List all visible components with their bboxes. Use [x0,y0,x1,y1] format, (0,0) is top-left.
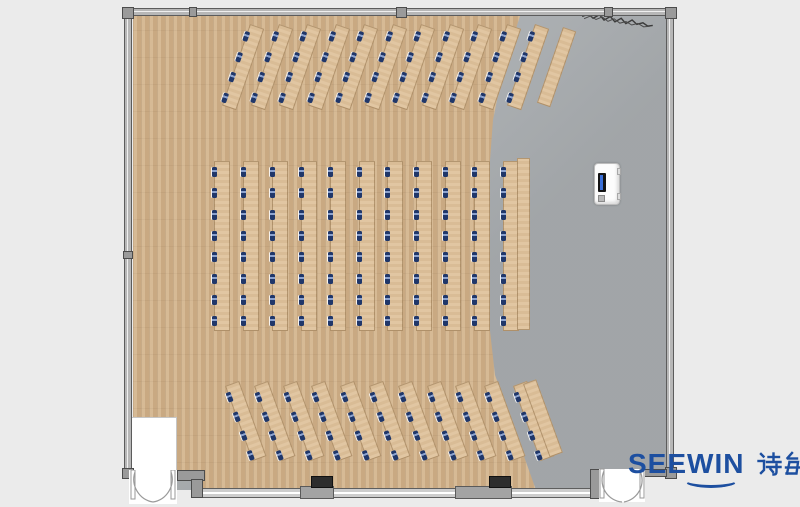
chair [270,274,275,284]
wall-right [666,8,674,470]
chair [419,449,427,460]
chair [364,92,372,103]
chair [406,51,414,62]
chair [421,92,429,103]
chair [414,231,419,241]
chair [357,295,362,305]
chair [472,295,477,305]
chair [448,449,456,460]
chair [443,295,448,305]
chair [477,449,485,460]
chair [499,430,507,441]
chair [275,449,283,460]
desk-row [214,161,230,331]
chair [212,210,217,220]
chair [501,295,506,305]
chair [514,392,522,403]
desk-row [272,161,288,331]
chair [241,210,246,220]
desk-row [243,161,259,331]
chair [501,188,506,198]
chair [270,188,275,198]
chair [472,231,477,241]
chair [221,92,229,103]
chair [357,167,362,177]
exterior-area [177,498,203,507]
brand-swoosh-icon [684,473,738,488]
chair [391,449,399,460]
chair [443,252,448,262]
chair [270,167,275,177]
chair [442,31,450,42]
chair [377,411,385,422]
chair [290,411,298,422]
chair [278,92,286,103]
lectern-handle-icon [617,168,621,175]
desk-row [359,161,375,331]
chair [472,167,477,177]
chair [270,231,275,241]
chair [385,252,390,262]
chair [228,72,236,83]
chair [349,51,357,62]
chair [299,167,304,177]
chair [241,295,246,305]
chair [456,72,464,83]
chair [501,274,506,284]
chair [356,31,364,42]
chair [212,188,217,198]
chair [414,252,419,262]
chair [478,92,486,103]
side-table [517,158,530,330]
window-band [203,488,302,498]
chair [443,274,448,284]
chair [428,72,436,83]
chair [333,449,341,460]
chair [357,274,362,284]
chair [371,72,379,83]
chair [357,316,362,326]
entry-vestibule [131,417,177,471]
chair [270,316,275,326]
chair [392,92,400,103]
chair [261,411,269,422]
chair [370,392,378,403]
chair [472,210,477,220]
chair [226,392,234,403]
brand-cn-glyphs-icon [756,451,800,477]
chair [299,210,304,220]
chair [399,72,407,83]
chair [314,72,322,83]
chair [212,231,217,241]
chair [241,231,246,241]
chair [328,210,333,220]
chair [250,92,258,103]
chair [414,274,419,284]
chair [528,430,536,441]
chair [212,316,217,326]
chair [427,392,435,403]
chair [472,252,477,262]
chair [328,31,336,42]
chair [212,167,217,177]
chair [463,51,471,62]
chair [328,295,333,305]
chair [299,231,304,241]
chair [456,392,464,403]
chair [501,231,506,241]
chair [443,231,448,241]
chair [307,92,315,103]
chair [335,92,343,103]
floor-plan-canvas: SEEWIN 诗敏 [0,0,800,507]
chair [241,316,246,326]
chair [299,31,307,42]
lectern [594,163,620,205]
chair [501,316,506,326]
wall-joint [604,7,613,17]
lectern-handle-icon [617,193,621,200]
chair [328,252,333,262]
chair [355,430,363,441]
chair [342,72,350,83]
chair [341,392,349,403]
chair [357,252,362,262]
chair [414,167,419,177]
desk-row [330,161,346,331]
chair [292,51,300,62]
chair [254,392,262,403]
chair [492,411,500,422]
chair [297,430,305,441]
chair [233,411,241,422]
chair [328,167,333,177]
desk-row [301,161,317,331]
chair [398,392,406,403]
entry-door-bottom-left[interactable] [128,470,178,507]
lectern-screen-icon [598,173,606,192]
chair [304,449,312,460]
chair [312,392,320,403]
chair [501,210,506,220]
chair [506,92,514,103]
chair [319,411,327,422]
chair [212,274,217,284]
chair [441,430,449,441]
chair [241,252,246,262]
chair [385,316,390,326]
chair [299,316,304,326]
chair [270,210,275,220]
chair [449,92,457,103]
chair [241,274,246,284]
chair [283,392,291,403]
chair [463,411,471,422]
chair [472,316,477,326]
window-band [334,488,457,498]
lectern-tray [598,195,605,202]
chair [264,51,272,62]
chair [443,188,448,198]
chair [506,449,514,460]
chair [472,274,477,284]
chair [270,252,275,262]
chair [501,252,506,262]
chair [414,210,419,220]
chair [326,430,334,441]
chair [240,430,248,441]
chair [384,430,392,441]
chair [328,188,333,198]
chair [501,167,506,177]
chair [520,51,528,62]
wall-left [124,8,132,471]
chair [268,430,276,441]
chair [257,72,265,83]
desk-row [445,161,461,331]
chair [328,316,333,326]
furniture-layer [0,0,800,507]
brand-wordmark: SEEWIN [628,449,744,479]
chair [485,392,493,403]
wall-column [311,476,333,488]
chair [357,210,362,220]
desk-row [387,161,403,331]
chair [285,72,293,83]
chair [328,274,333,284]
wall-stub [191,479,203,498]
chair [270,295,275,305]
chair [385,167,390,177]
chair [328,231,333,241]
corner-post [665,7,677,19]
chair [212,252,217,262]
corner-post [122,7,134,19]
chair [385,274,390,284]
chair [414,316,419,326]
window-band [511,488,590,498]
chair [443,316,448,326]
chair [385,188,390,198]
chair [521,411,529,422]
chair [362,449,370,460]
chair [412,430,420,441]
chair [492,51,500,62]
chair [413,31,421,42]
chair [470,31,478,42]
chair [435,51,443,62]
wall-column [489,476,511,488]
chair [299,274,304,284]
chair [241,188,246,198]
seewin-logo: SEEWIN 诗敏 [628,445,800,483]
chair [414,188,419,198]
chair [299,295,304,305]
chair [535,449,543,460]
chair [299,188,304,198]
wall-joint [396,7,407,18]
chair [357,231,362,241]
chair [385,295,390,305]
chair [470,430,478,441]
chair [472,188,477,198]
desk-row [416,161,432,331]
wall-joint [189,7,197,17]
chair [414,295,419,305]
chair [321,51,329,62]
chair [527,31,535,42]
chair [443,167,448,177]
chair [242,31,250,42]
wall-joint [123,251,133,259]
chair [247,449,255,460]
chair [434,411,442,422]
chair [357,188,362,198]
chair [385,31,393,42]
chair [385,210,390,220]
chair [485,72,493,83]
chair [499,31,507,42]
chair [235,51,243,62]
chair [378,51,386,62]
desk-row [474,161,490,331]
chair [241,167,246,177]
chair [513,72,521,83]
chair [212,295,217,305]
chair [271,31,279,42]
chair [443,210,448,220]
chair [405,411,413,422]
chair [348,411,356,422]
chair [299,252,304,262]
chair [385,231,390,241]
